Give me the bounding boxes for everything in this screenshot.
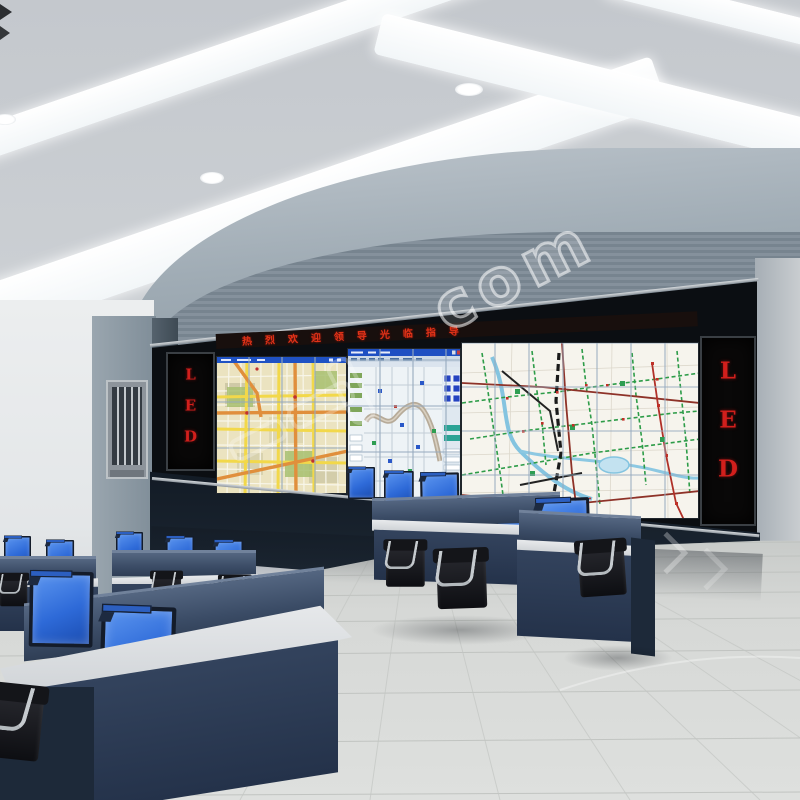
chair-shadow <box>563 645 673 671</box>
ceiling-vent <box>0 26 10 40</box>
led-panel-right-label: LED <box>715 358 742 505</box>
desk-foreground <box>0 555 360 800</box>
led-panel-left-label: LED <box>182 365 200 458</box>
ceiling-vent <box>0 4 12 20</box>
led-panel-right: LED <box>700 336 756 526</box>
desk-right <box>505 485 665 685</box>
equipment-room-door <box>106 380 148 479</box>
control-room-scene: LED <box>0 0 800 800</box>
right-end-wall <box>755 258 800 576</box>
downlight <box>455 83 483 96</box>
downlight <box>200 172 224 184</box>
door-window-grid <box>112 387 142 465</box>
door-kick-plate <box>110 470 144 477</box>
led-panel-left: LED <box>166 352 215 471</box>
